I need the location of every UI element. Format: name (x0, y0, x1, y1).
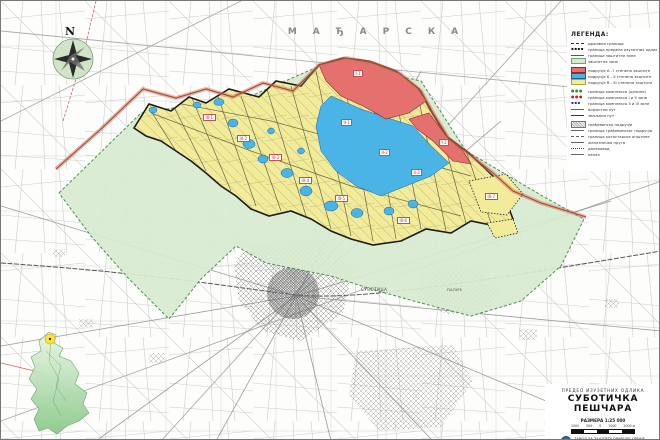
legend-item: заштитна зона (571, 58, 657, 64)
scale-bar-ticks: 1000 500 0 1000 2000 м (571, 425, 635, 429)
zone-label: II-3 (411, 169, 422, 176)
area-border-symbol: ▪▪▪▪ (571, 47, 586, 51)
zone-label: III-6 (397, 217, 410, 224)
legend-title: ЛЕГЕНДА: (571, 31, 657, 38)
legend-item: подручје В - III степена заштите (571, 79, 657, 85)
zone-label: III-3 (269, 154, 282, 161)
zone-label: I-2 (439, 139, 449, 146)
institute-logo-icon: ◉ (561, 436, 571, 440)
zone-label: III-5 (335, 195, 348, 202)
city-label-subotica: СУБОТИЦА (361, 287, 387, 292)
map-sheet: МАЂАРСКА N СУБОТИЦА ПАЛИЋ I-1 I-2 II-1 I… (0, 0, 660, 440)
dirt-road-symbol (571, 115, 586, 116)
zone-label: III-2 (237, 135, 250, 142)
legend-item: канал (571, 151, 657, 157)
compass-north-letter: N (65, 25, 75, 38)
zone-3-swatch (571, 79, 586, 85)
built-up-border-symbol (571, 130, 586, 131)
buffer-border-symbol (571, 55, 586, 56)
scale-bar: 1000 500 0 1000 2000 м (571, 425, 635, 433)
built-up-swatch (571, 121, 586, 128)
legend: ЛЕГЕНДА: државна граница ▪▪▪▪ граница пр… (567, 28, 659, 171)
asphalt-road-symbol (571, 109, 586, 110)
zone-label: III-4 (299, 177, 312, 184)
complex-2-3-border-symbol: ▪▪▪ (571, 101, 586, 105)
zone-label: II-2 (379, 149, 390, 156)
zone-label: II-1 (341, 119, 352, 126)
title-block: ПРЕДЕО ИЗУЗЕТНИХ ОДЛИКА СУБОТИЧКА ПЕШЧАР… (545, 384, 660, 440)
country-label-hungary: МАЂАРСКА (251, 27, 511, 37)
map-title: СУБОТИЧКА ПЕШЧАРА (545, 394, 660, 414)
city-label-palic: ПАЛИЋ (447, 288, 463, 292)
scale-bar-segments (571, 429, 635, 434)
complex-border-symbol: ●●● (571, 89, 586, 93)
legend-item: земљани пут (571, 112, 657, 118)
zone-label: III-7 (485, 193, 498, 200)
cadastre-border-symbol (571, 136, 586, 137)
compass-rose (53, 39, 93, 79)
railway-symbol (571, 142, 586, 143)
scale-text: РАЗМЕРА 1:25 000 (545, 418, 660, 423)
zone-label: I-1 (353, 70, 363, 77)
complex-1-2-border-symbol: ●●● (571, 95, 586, 99)
map-subtitle: ПРЕДЕО ИЗУЗЕТНИХ ОДЛИКА (545, 388, 660, 393)
state-border-symbol (571, 43, 586, 44)
base-map (1, 1, 660, 440)
zone-label: III-1 (203, 114, 216, 121)
buffer-zone-swatch (571, 58, 586, 64)
powerline-symbol (571, 148, 586, 149)
canal-symbol (571, 154, 586, 155)
publisher-block: ◉ ЗАВОД ЗА ЗАШТИТУ ПРИРОДЕ СРБИЈЕ Нови С… (545, 436, 660, 440)
